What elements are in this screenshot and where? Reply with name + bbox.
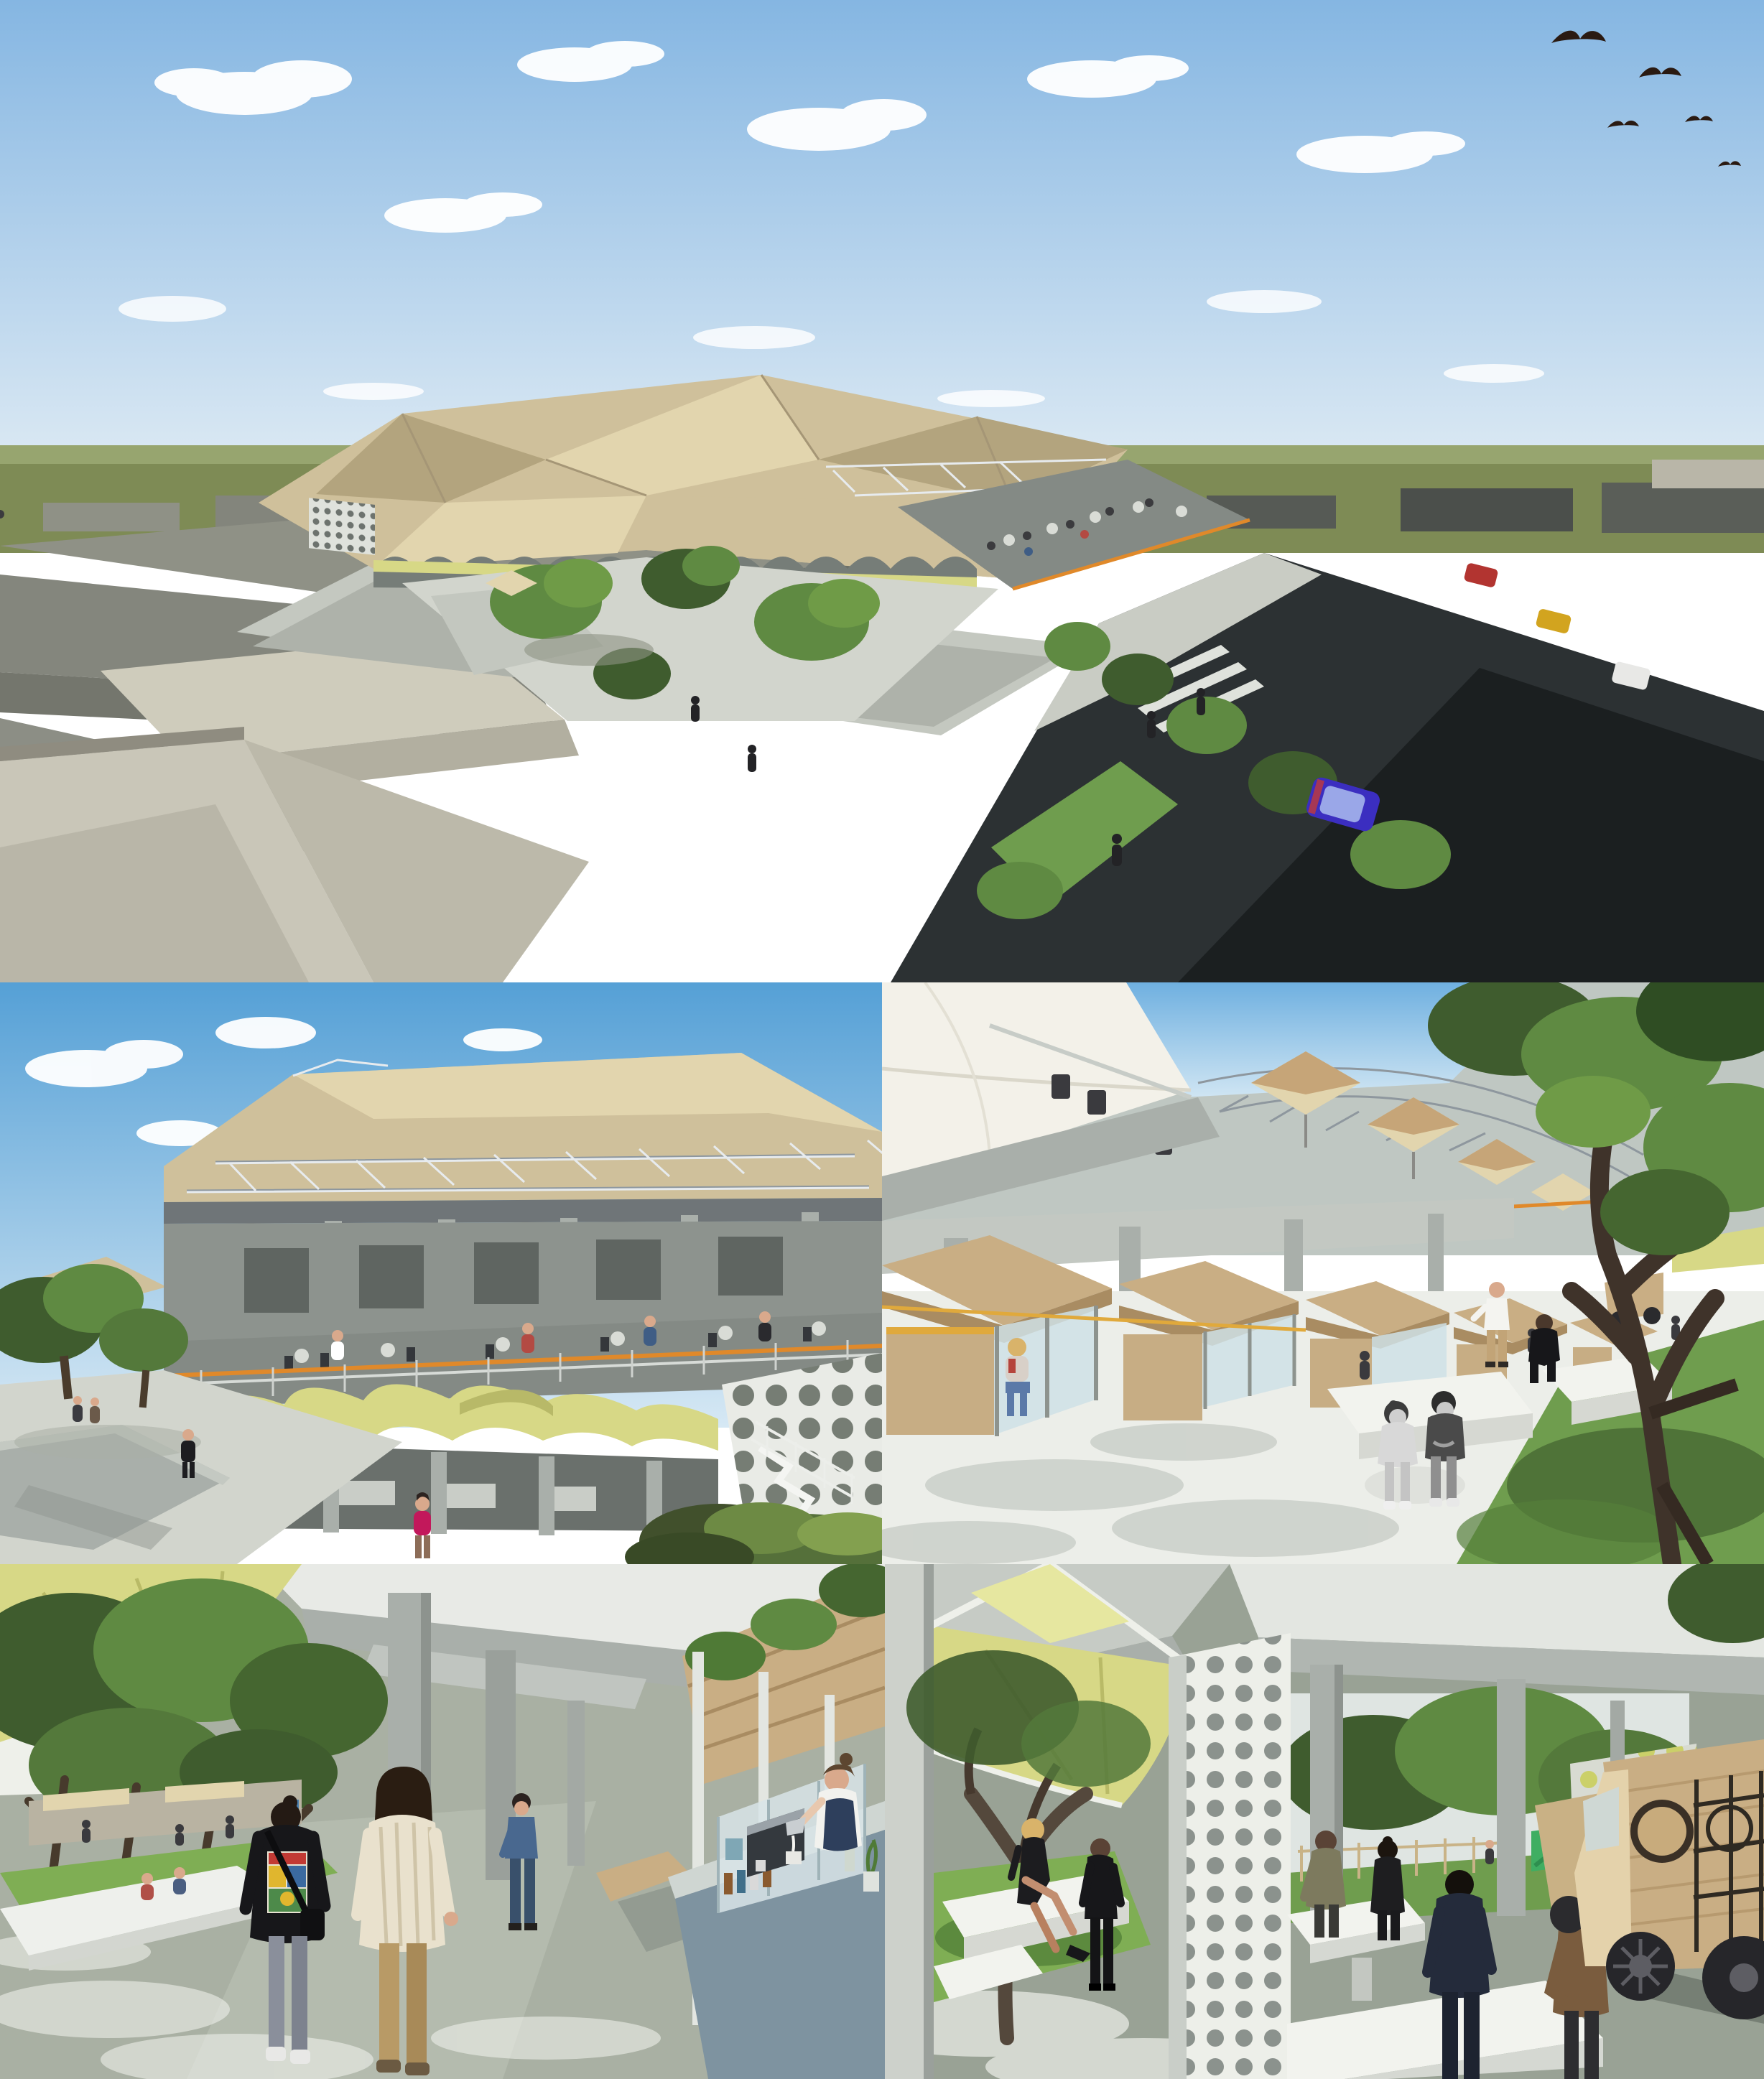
rendering-collage xyxy=(0,0,1764,2079)
car-yellow xyxy=(1536,608,1572,634)
porthole xyxy=(1630,1800,1694,1863)
menu-card xyxy=(725,1838,743,1860)
sling-bag xyxy=(300,1909,325,1940)
panel-market-walkway xyxy=(0,1564,885,2079)
panel-aerial-view xyxy=(0,0,1764,982)
woman-magenta xyxy=(414,1492,431,1558)
panel-stall-courtyard xyxy=(882,982,1764,1564)
screen-wall-edge xyxy=(1169,1655,1187,2079)
perforated-screen-wall xyxy=(1169,1633,1291,2079)
panel-food-hall xyxy=(885,1564,1764,2079)
perforated-panel xyxy=(309,498,375,555)
foreground-roofs xyxy=(0,727,589,982)
car-red xyxy=(1464,562,1499,588)
panel-plaza-view xyxy=(0,982,882,1564)
left-pillar xyxy=(885,1564,934,2079)
apron xyxy=(823,1798,858,1851)
cup xyxy=(786,1851,802,1864)
